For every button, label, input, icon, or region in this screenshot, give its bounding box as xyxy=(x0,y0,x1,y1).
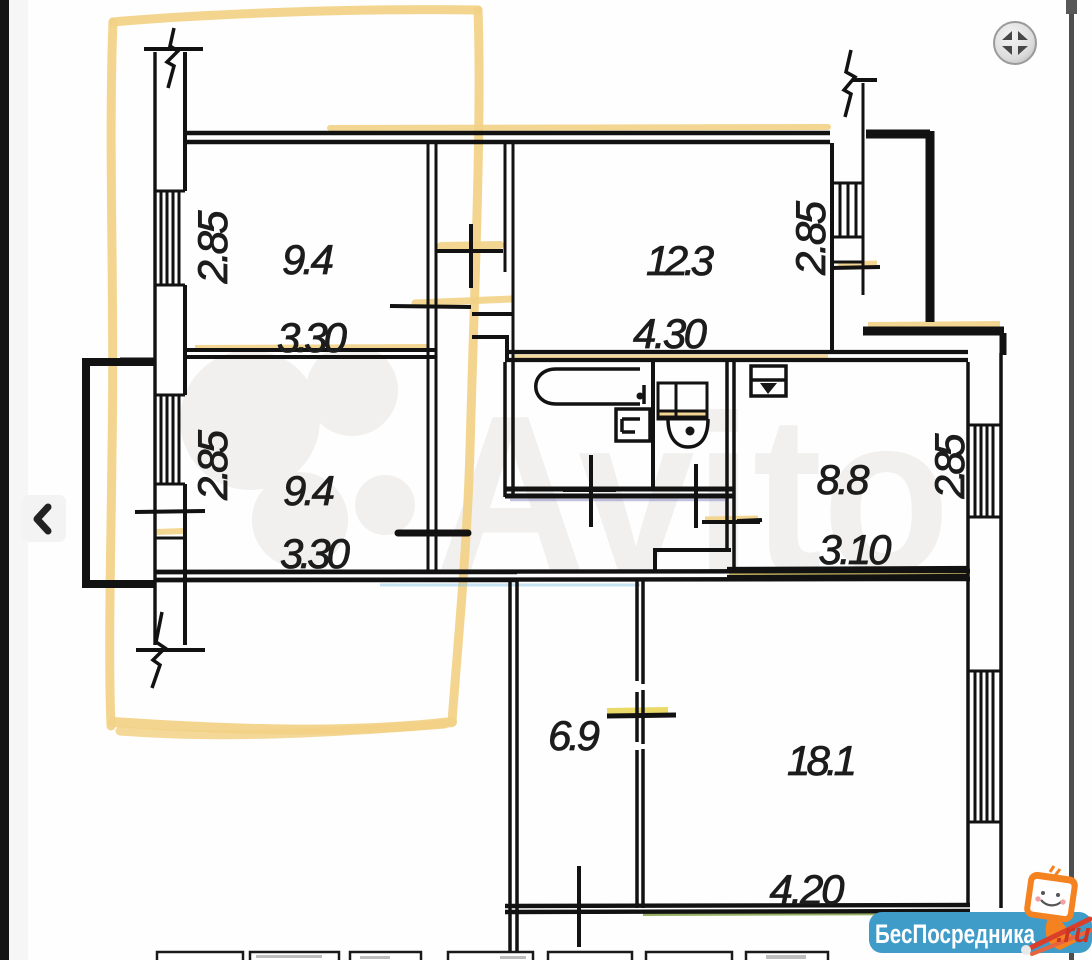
svg-text:3.10: 3.10 xyxy=(819,526,893,573)
svg-text:4.30: 4.30 xyxy=(633,310,708,357)
svg-text:2.85: 2.85 xyxy=(926,433,973,500)
svg-text:2.85: 2.85 xyxy=(189,429,236,501)
svg-text:8.8: 8.8 xyxy=(817,456,871,503)
svg-text:4.20: 4.20 xyxy=(770,866,846,913)
svg-text:12.3: 12.3 xyxy=(646,237,714,284)
svg-text:.ru: .ru xyxy=(1056,918,1091,948)
svg-text:6.9: 6.9 xyxy=(548,712,600,759)
svg-text:18.1: 18.1 xyxy=(787,737,857,784)
svg-text:2.85: 2.85 xyxy=(189,210,236,285)
svg-text:3.30: 3.30 xyxy=(277,314,348,361)
svg-text:2.85: 2.85 xyxy=(787,200,834,276)
svg-text:3.30: 3.30 xyxy=(280,530,351,577)
svg-text:БесПосредника: БесПосредника xyxy=(875,919,1035,949)
svg-text:9.4: 9.4 xyxy=(283,467,335,514)
svg-text:9.4: 9.4 xyxy=(282,236,334,283)
